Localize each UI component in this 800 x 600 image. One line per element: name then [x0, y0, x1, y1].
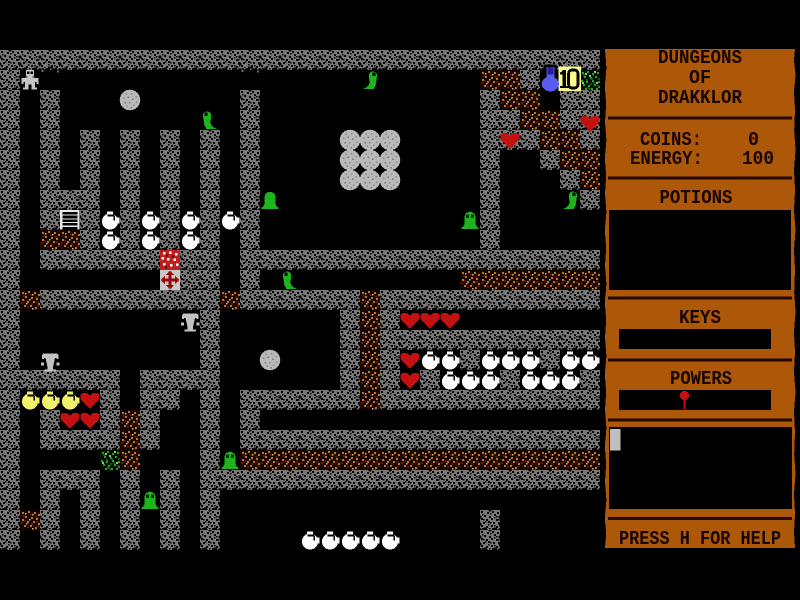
- svg-text:100: 100: [742, 148, 774, 170]
- svg-text:POWERS: POWERS: [670, 368, 732, 390]
- svg-text:POTIONS: POTIONS: [660, 187, 733, 209]
- svg-text:OF: OF: [689, 67, 711, 89]
- svg-text:DRAKKLOR: DRAKKLOR: [658, 87, 743, 109]
- svg-text:DUNGEONS: DUNGEONS: [658, 47, 742, 69]
- svg-text:KEYS: KEYS: [679, 307, 721, 329]
- svg-text:PRESS H FOR HELP: PRESS H FOR HELP: [619, 528, 781, 550]
- svg-text:ENERGY:: ENERGY:: [630, 148, 703, 170]
